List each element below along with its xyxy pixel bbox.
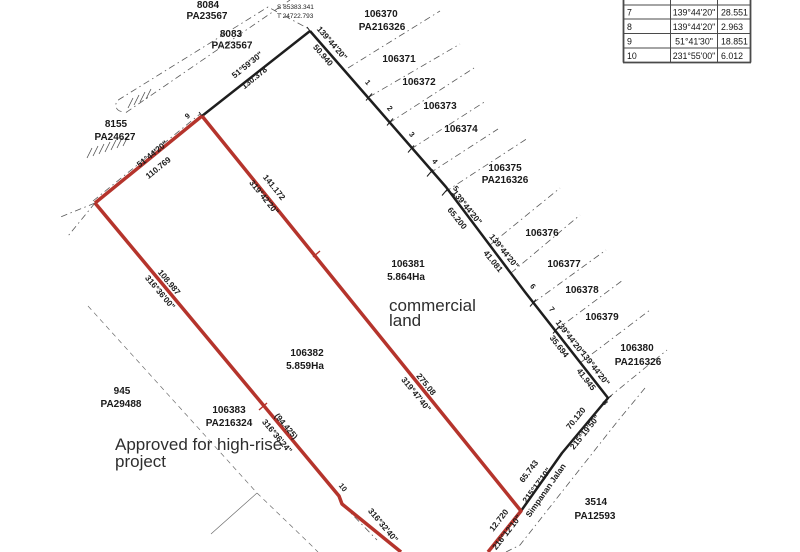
svg-text:3514: 3514 [585, 497, 608, 508]
svg-text:139°44'20": 139°44'20" [673, 8, 716, 18]
svg-text:106383: 106383 [212, 405, 246, 416]
svg-text:106382: 106382 [290, 348, 324, 359]
svg-text:7: 7 [627, 8, 632, 18]
svg-text:PA216324: PA216324 [206, 418, 253, 429]
svg-text:5.864Ha: 5.864Ha [387, 272, 425, 283]
svg-text:28.551: 28.551 [721, 8, 748, 18]
svg-text:231°55'00": 231°55'00" [673, 51, 716, 61]
svg-text:8084: 8084 [197, 0, 220, 11]
svg-text:PA216326: PA216326 [615, 357, 662, 368]
svg-text:S 85383.341: S 85383.341 [277, 4, 314, 11]
svg-text:51°41'30": 51°41'30" [675, 37, 713, 47]
svg-text:106376: 106376 [525, 228, 559, 239]
svg-text:8083: 8083 [220, 29, 243, 40]
svg-text:PA23567: PA23567 [187, 11, 228, 22]
svg-text:945: 945 [114, 386, 131, 397]
svg-text:106373: 106373 [423, 101, 457, 112]
svg-text:106377: 106377 [547, 259, 581, 270]
svg-text:106378: 106378 [565, 285, 599, 296]
svg-text:6.012: 6.012 [721, 51, 743, 61]
svg-text:106370: 106370 [364, 9, 398, 20]
svg-text:106375: 106375 [488, 163, 522, 174]
svg-text:8155: 8155 [105, 119, 128, 130]
svg-text:106380: 106380 [620, 343, 654, 354]
svg-text:106374: 106374 [444, 124, 478, 135]
svg-text:PA23567: PA23567 [212, 41, 253, 52]
svg-text:106371: 106371 [382, 54, 416, 65]
svg-text:PA29488: PA29488 [101, 399, 142, 410]
svg-text:8: 8 [627, 22, 632, 32]
svg-text:PA24627: PA24627 [95, 132, 136, 143]
svg-text:10: 10 [627, 51, 637, 61]
svg-text:land: land [389, 311, 421, 330]
svg-text:18.851: 18.851 [721, 37, 748, 47]
svg-text:9: 9 [627, 37, 632, 47]
svg-text:5.859Ha: 5.859Ha [286, 361, 324, 372]
svg-text:T 24722.793: T 24722.793 [277, 13, 314, 20]
svg-text:139°44'20": 139°44'20" [673, 22, 716, 32]
svg-text:106381: 106381 [391, 259, 425, 270]
svg-text:PA12593: PA12593 [575, 511, 616, 522]
svg-text:project: project [115, 452, 166, 471]
svg-text:PA216326: PA216326 [482, 175, 529, 186]
svg-text:PA216326: PA216326 [359, 22, 406, 33]
svg-text:106372: 106372 [402, 77, 436, 88]
svg-text:2.963: 2.963 [721, 22, 743, 32]
svg-text:106379: 106379 [585, 312, 619, 323]
